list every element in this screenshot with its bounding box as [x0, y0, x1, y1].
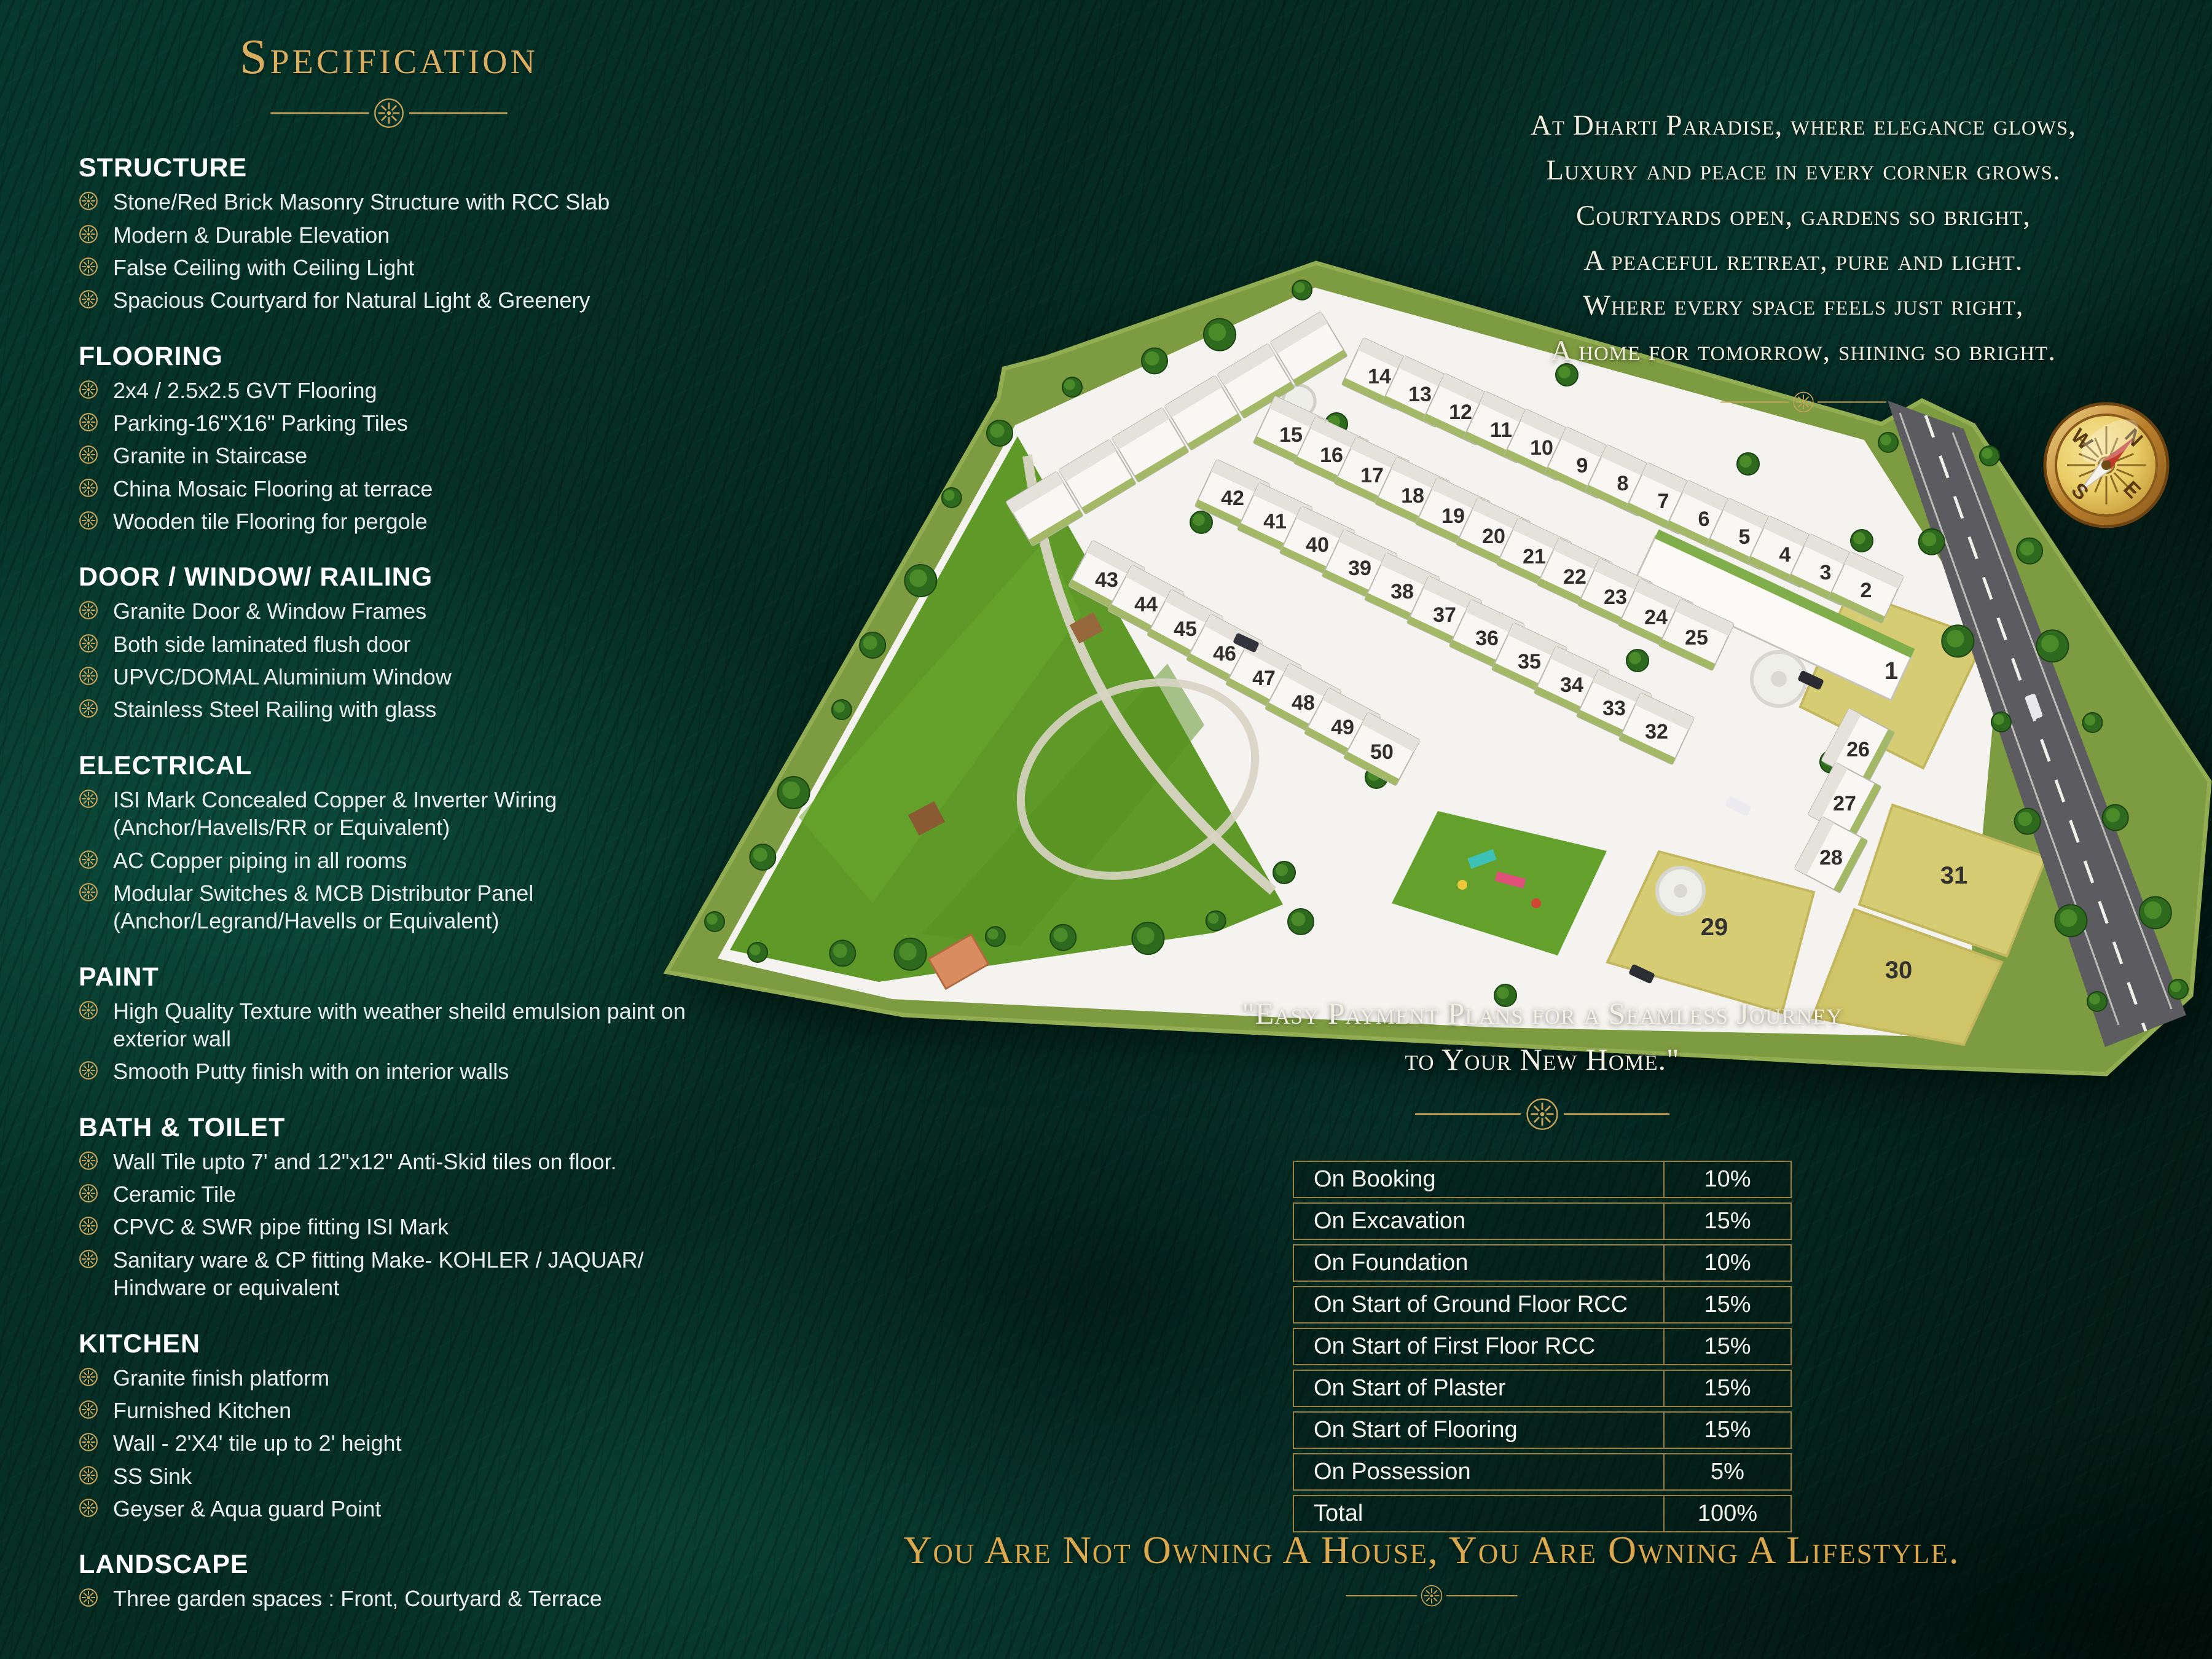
unit-number: 11	[1490, 418, 1512, 442]
unit-number: 47	[1252, 667, 1276, 690]
spec-item-text: Granite in Staircase	[113, 442, 307, 469]
unit-number: 3	[1820, 561, 1832, 584]
milestone-label: On Start of First Floor RCC	[1294, 1329, 1663, 1364]
spec-item-text: Stainless Steel Railing with glass	[113, 696, 436, 723]
spec-item: Both side laminated flush door	[79, 630, 841, 658]
spec-item-text: False Ceiling with Ceiling Light	[113, 254, 414, 281]
section-heading: KITCHEN	[79, 1329, 841, 1359]
palm-bullet-icon	[79, 1061, 98, 1080]
divider-ornament-icon	[266, 95, 512, 131]
palm-bullet-icon	[79, 380, 98, 399]
open-plot-number: 1	[1885, 657, 1898, 684]
payment-heading-line: "Easy Payment Plans for a Seamless Journ…	[1167, 990, 1917, 1037]
spec-item-text: Granite Door & Window Frames	[113, 597, 426, 625]
spec-item-text: Ceramic Tile	[113, 1180, 236, 1208]
section-heading: ELECTRICAL	[79, 751, 841, 781]
unit-number: 34	[1560, 673, 1583, 697]
spec-item-text: Wooden tile Flooring for pergole	[113, 508, 428, 535]
palm-bullet-icon	[79, 850, 98, 869]
spec-item: China Mosaic Flooring at terrace	[79, 475, 841, 503]
unit-number: 17	[1360, 464, 1384, 487]
specification-sections: STRUCTURE Stone/Red Brick Masonry Struct…	[79, 153, 841, 1613]
palm-bullet-icon	[79, 191, 98, 211]
milestone-percentage: 100%	[1663, 1496, 1790, 1531]
section-heading: BATH & TOILET	[79, 1113, 841, 1143]
divider-ornament-icon	[1717, 390, 1889, 415]
section-items: Stone/Red Brick Masonry Structure with R…	[79, 188, 841, 314]
spec-item-text: Both side laminated flush door	[113, 630, 410, 658]
section-heading: FLOORING	[79, 342, 841, 372]
spec-item: 2x4 / 2.5x2.5 GVT Flooring	[79, 377, 841, 404]
palm-bullet-icon	[79, 1000, 98, 1020]
palm-bullet-icon	[79, 1183, 98, 1203]
spec-item: Wall Tile upto 7' and 12"x12" Anti-Skid …	[79, 1148, 841, 1175]
unit-number: 35	[1518, 650, 1541, 673]
spec-item: Wooden tile Flooring for pergole	[79, 508, 841, 535]
intro-poem: At Dharti Paradise, where elegance glows…	[1407, 103, 2200, 415]
unit-number: 14	[1368, 365, 1391, 388]
spec-item-text: Stone/Red Brick Masonry Structure with R…	[113, 188, 610, 216]
palm-bullet-icon	[79, 257, 98, 276]
spec-item-text: 2x4 / 2.5x2.5 GVT Flooring	[113, 377, 377, 404]
unit-number: 2	[1861, 579, 1872, 602]
section-heading: DOOR / WINDOW/ RAILING	[79, 562, 841, 592]
payment-plan-panel: "Easy Payment Plans for a Seamless Journ…	[1167, 990, 1917, 1537]
divider-ornament-icon	[1410, 1095, 1674, 1134]
spec-item-text: Three garden spaces : Front, Courtyard &…	[113, 1585, 602, 1612]
spec-section-bath-toilet: BATH & TOILET Wall Tile upto 7' and 12"x…	[79, 1113, 841, 1302]
payment-table-row: On Start of Ground Floor RCC15%	[1293, 1286, 1792, 1324]
spec-item-text: AC Copper piping in all rooms	[113, 847, 407, 874]
milestone-label: On Booking	[1294, 1162, 1663, 1197]
spec-item: Granite Door & Window Frames	[79, 597, 841, 625]
unit-number: 38	[1390, 580, 1414, 603]
unit-number: 48	[1292, 691, 1315, 715]
section-items: Granite Door & Window Frames Both side l…	[79, 597, 841, 723]
spec-item-text: Granite finish platform	[113, 1364, 329, 1392]
palm-bullet-icon	[79, 1367, 98, 1387]
unit-number: 45	[1174, 618, 1197, 641]
unit-number: 50	[1370, 740, 1394, 764]
poem-line: A home for tomorrow, shining so bright.	[1407, 329, 2200, 374]
unit-number: 5	[1739, 525, 1751, 549]
palm-bullet-icon	[79, 1249, 98, 1269]
unit-number: 22	[1563, 565, 1586, 589]
payment-table-row: On Start of First Floor RCC15%	[1293, 1328, 1792, 1365]
section-items: Wall Tile upto 7' and 12"x12" Anti-Skid …	[79, 1148, 841, 1302]
palm-bullet-icon	[79, 445, 98, 465]
brochure-page: 1413121110987654321516171819202122232425…	[0, 0, 2212, 1659]
section-heading: PAINT	[79, 962, 841, 992]
poem-lines: At Dharti Paradise, where elegance glows…	[1407, 103, 2200, 374]
palm-bullet-icon	[79, 789, 98, 809]
spec-item: Geyser & Aqua guard Point	[79, 1495, 841, 1523]
milestone-label: On Start of Plaster	[1294, 1371, 1663, 1406]
section-items: Granite finish platform Furnished Kitche…	[79, 1364, 841, 1523]
tagline-section: You Are Not Owning A House, You Are Owni…	[707, 1528, 2157, 1609]
spec-section-flooring: FLOORING 2x4 / 2.5x2.5 GVT Flooring Park…	[79, 342, 841, 536]
unit-number: 23	[1604, 586, 1627, 609]
spec-item-text: Modern & Durable Elevation	[113, 221, 390, 249]
open-plot-number: 30	[1885, 957, 1913, 984]
spec-item-text: Sanitary ware & CP fitting Make- KOHLER …	[113, 1246, 728, 1302]
poem-line: Luxury and peace in every corner grows.	[1407, 148, 2200, 193]
roundabout-center	[1674, 884, 1687, 898]
payment-table-row: On Excavation15%	[1293, 1202, 1792, 1240]
unit-number: 4	[1779, 543, 1791, 567]
unit-number: 33	[1602, 697, 1626, 720]
spec-item: High Quality Texture with weather sheild…	[79, 997, 841, 1053]
payment-table-row: On Start of Plaster15%	[1293, 1370, 1792, 1407]
spec-item-text: Furnished Kitchen	[113, 1397, 291, 1424]
spec-item: Parking-16"X16" Parking Tiles	[79, 409, 841, 437]
unit-number: 32	[1645, 720, 1668, 743]
palm-bullet-icon	[79, 1465, 98, 1485]
milestone-percentage: 15%	[1663, 1413, 1790, 1448]
unit-number: 24	[1644, 606, 1668, 629]
spec-item: AC Copper piping in all rooms	[79, 847, 841, 874]
spec-item: False Ceiling with Ceiling Light	[79, 254, 841, 281]
open-plot-number: 29	[1701, 914, 1728, 941]
payment-table-row: Total100%	[1293, 1495, 1792, 1532]
compass-icon: NESW	[2039, 398, 2172, 530]
milestone-label: On Excavation	[1294, 1204, 1663, 1239]
divider-ornament-icon	[1343, 1583, 1521, 1609]
palm-bullet-icon	[79, 666, 98, 686]
palm-bullet-icon	[79, 1400, 98, 1419]
milestone-label: On Start of Ground Floor RCC	[1294, 1287, 1663, 1322]
palm-bullet-icon	[79, 1216, 98, 1236]
palm-bullet-icon	[79, 600, 98, 620]
spec-item-text: Wall - 2'X4' tile up to 2' height	[113, 1429, 402, 1457]
spec-item-text: Spacious Courtyard for Natural Light & G…	[113, 286, 590, 314]
spec-item-text: Modular Switches & MCB Distributor Panel…	[113, 879, 728, 935]
palm-bullet-icon	[79, 1432, 98, 1452]
payment-table-row: On Start of Flooring15%	[1293, 1411, 1792, 1449]
unit-number: 44	[1134, 593, 1158, 616]
spec-item-text: ISI Mark Concealed Copper & Inverter Wir…	[113, 786, 728, 842]
payment-table: On Booking10%On Excavation15%On Foundati…	[1293, 1161, 1792, 1532]
spec-item-text: Smooth Putty finish with on interior wal…	[113, 1057, 509, 1085]
play-equipment	[1531, 898, 1541, 908]
spec-item: UPVC/DOMAL Aluminium Window	[79, 663, 841, 691]
payment-table-row: On Foundation10%	[1293, 1244, 1792, 1282]
spec-item-text: High Quality Texture with weather sheild…	[113, 997, 728, 1053]
unit-number: 21	[1523, 545, 1546, 568]
palm-bullet-icon	[79, 412, 98, 432]
milestone-percentage: 15%	[1663, 1287, 1790, 1322]
milestone-percentage: 10%	[1663, 1245, 1790, 1281]
spec-item-text: Geyser & Aqua guard Point	[113, 1495, 381, 1523]
palm-bullet-icon	[79, 882, 98, 902]
poem-line: Courtyards open, gardens so bright,	[1407, 194, 2200, 238]
spec-section-kitchen: KITCHEN Granite finish platform Furnishe…	[79, 1329, 841, 1523]
unit-number: 8	[1617, 472, 1629, 495]
poem-line: At Dharti Paradise, where elegance glows…	[1407, 103, 2200, 148]
play-equipment	[1457, 880, 1467, 890]
tagline-text: You Are Not Owning A House, You Are Owni…	[707, 1528, 2157, 1573]
spec-item-text: China Mosaic Flooring at terrace	[113, 475, 433, 503]
milestone-label: On Foundation	[1294, 1245, 1663, 1281]
palm-bullet-icon	[79, 478, 98, 498]
unit-number: 16	[1320, 444, 1343, 467]
spec-item: Ceramic Tile	[79, 1180, 841, 1208]
poem-line: A peaceful retreat, pure and light.	[1407, 238, 2200, 283]
section-items: High Quality Texture with weather sheild…	[79, 997, 841, 1086]
unit-number: 49	[1331, 716, 1354, 739]
milestone-label: Total	[1294, 1496, 1663, 1531]
milestone-percentage: 15%	[1663, 1204, 1790, 1239]
unit-number: 39	[1348, 557, 1371, 580]
spec-item: Wall - 2'X4' tile up to 2' height	[79, 1429, 841, 1457]
spec-section-paint: PAINT High Quality Texture with weather …	[79, 962, 841, 1086]
unit-number: 10	[1530, 436, 1553, 460]
specification-panel: Specification STRUCTURE Stone/Red Brick …	[79, 29, 841, 1618]
spec-item: Sanitary ware & CP fitting Make- KOHLER …	[79, 1246, 841, 1302]
palm-bullet-icon	[79, 289, 98, 309]
spec-item: Stone/Red Brick Masonry Structure with R…	[79, 188, 841, 216]
specification-header: Specification	[79, 29, 699, 131]
section-heading: STRUCTURE	[79, 153, 841, 183]
spec-item: Granite finish platform	[79, 1364, 841, 1392]
unit-number: 19	[1441, 504, 1465, 528]
unit-number: 46	[1213, 642, 1236, 665]
unit-number: 6	[1698, 508, 1710, 531]
milestone-label: On Start of Flooring	[1294, 1413, 1663, 1448]
spec-item: Spacious Courtyard for Natural Light & G…	[79, 286, 841, 314]
unit-number: 28	[1819, 846, 1843, 869]
unit-number: 15	[1279, 423, 1303, 447]
poem-line: Where every space feels just right,	[1407, 283, 2200, 328]
section-items: 2x4 / 2.5x2.5 GVT Flooring Parking-16"X1…	[79, 377, 841, 536]
payment-table-row: On Booking10%	[1293, 1161, 1792, 1198]
unit-number: 42	[1221, 487, 1244, 510]
unit-number: 36	[1475, 627, 1499, 650]
unit-number: 20	[1482, 525, 1505, 548]
palm-bullet-icon	[79, 1588, 98, 1607]
spec-item: Smooth Putty finish with on interior wal…	[79, 1057, 841, 1085]
page-title: Specification	[79, 29, 699, 85]
spec-item-text: UPVC/DOMAL Aluminium Window	[113, 663, 452, 691]
unit-number: 41	[1263, 510, 1287, 533]
unit-number: 43	[1095, 568, 1118, 592]
palm-bullet-icon	[79, 633, 98, 653]
spec-item-text: SS Sink	[113, 1462, 192, 1490]
palm-bullet-icon	[79, 1151, 98, 1171]
milestone-percentage: 15%	[1663, 1371, 1790, 1406]
spec-item-text: Wall Tile upto 7' and 12"x12" Anti-Skid …	[113, 1148, 617, 1175]
spec-item: Modular Switches & MCB Distributor Panel…	[79, 879, 841, 935]
spec-item: Modern & Durable Elevation	[79, 221, 841, 249]
unit-number: 25	[1685, 626, 1708, 649]
milestone-percentage: 5%	[1663, 1454, 1790, 1489]
unit-number: 7	[1658, 490, 1669, 513]
palm-bullet-icon	[79, 1498, 98, 1518]
milestone-percentage: 15%	[1663, 1329, 1790, 1364]
roundabout-center	[1771, 671, 1787, 687]
spec-section-electrical: ELECTRICAL ISI Mark Concealed Copper & I…	[79, 751, 841, 935]
payment-heading: "Easy Payment Plans for a Seamless Journ…	[1167, 990, 1917, 1083]
spec-item: ISI Mark Concealed Copper & Inverter Wir…	[79, 786, 841, 842]
unit-number: 37	[1433, 603, 1456, 627]
spec-item: CPVC & SWR pipe fitting ISI Mark	[79, 1213, 841, 1241]
palm-bullet-icon	[79, 699, 98, 718]
spec-section-door-window-railing: DOOR / WINDOW/ RAILING Granite Door & Wi…	[79, 562, 841, 723]
unit-number: 27	[1833, 792, 1856, 815]
unit-number: 40	[1306, 533, 1329, 557]
spec-item: Stainless Steel Railing with glass	[79, 696, 841, 723]
unit-number: 18	[1401, 484, 1424, 508]
section-items: ISI Mark Concealed Copper & Inverter Wir…	[79, 786, 841, 935]
milestone-label: On Possession	[1294, 1454, 1663, 1489]
unit-number: 9	[1577, 454, 1588, 477]
spec-section-structure: STRUCTURE Stone/Red Brick Masonry Struct…	[79, 153, 841, 314]
spec-item-text: CPVC & SWR pipe fitting ISI Mark	[113, 1213, 449, 1241]
open-plot-number: 31	[1940, 862, 1968, 889]
unit-number: 26	[1846, 738, 1870, 761]
palm-bullet-icon	[79, 511, 98, 530]
payment-heading-line: to Your New Home."	[1167, 1037, 1917, 1083]
spec-item: Furnished Kitchen	[79, 1397, 841, 1424]
spec-item-text: Parking-16"X16" Parking Tiles	[113, 409, 408, 437]
spec-item: SS Sink	[79, 1462, 841, 1490]
milestone-percentage: 10%	[1663, 1162, 1790, 1197]
spec-item: Granite in Staircase	[79, 442, 841, 469]
palm-bullet-icon	[79, 224, 98, 244]
payment-table-row: On Possession5%	[1293, 1453, 1792, 1491]
